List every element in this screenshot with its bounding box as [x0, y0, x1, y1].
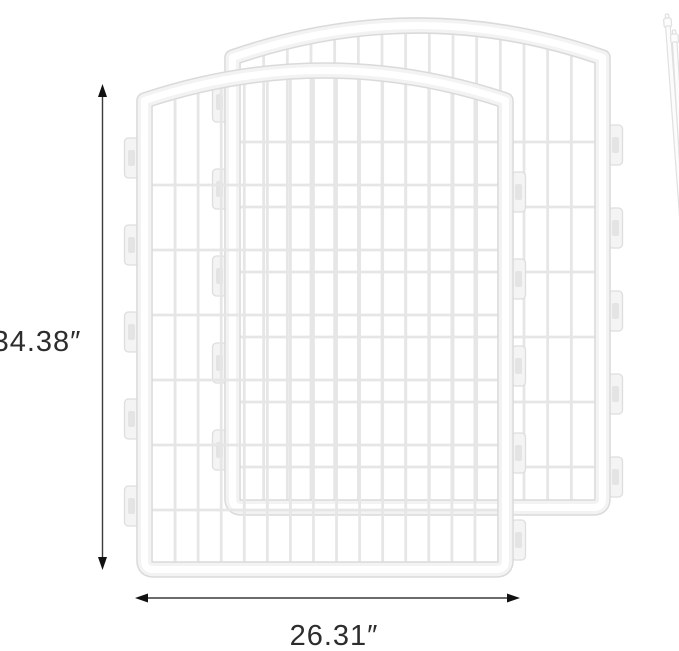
back-panel-grid [225, 18, 610, 515]
back-panel-tabs [213, 82, 623, 497]
diagram-canvas: 34.38″ 26.31″ [0, 0, 679, 651]
width-dimension-label: 26.31″ [290, 620, 379, 651]
height-dimension-label: 34.38″ [0, 326, 81, 358]
scene [98, 14, 679, 603]
height-dimension-line [98, 84, 107, 570]
back-panel [213, 18, 623, 515]
width-dimension-line [135, 594, 520, 603]
product-dimension-diagram: 34.38″ 26.31″ [0, 0, 679, 651]
front-panel-tabs [125, 138, 526, 560]
